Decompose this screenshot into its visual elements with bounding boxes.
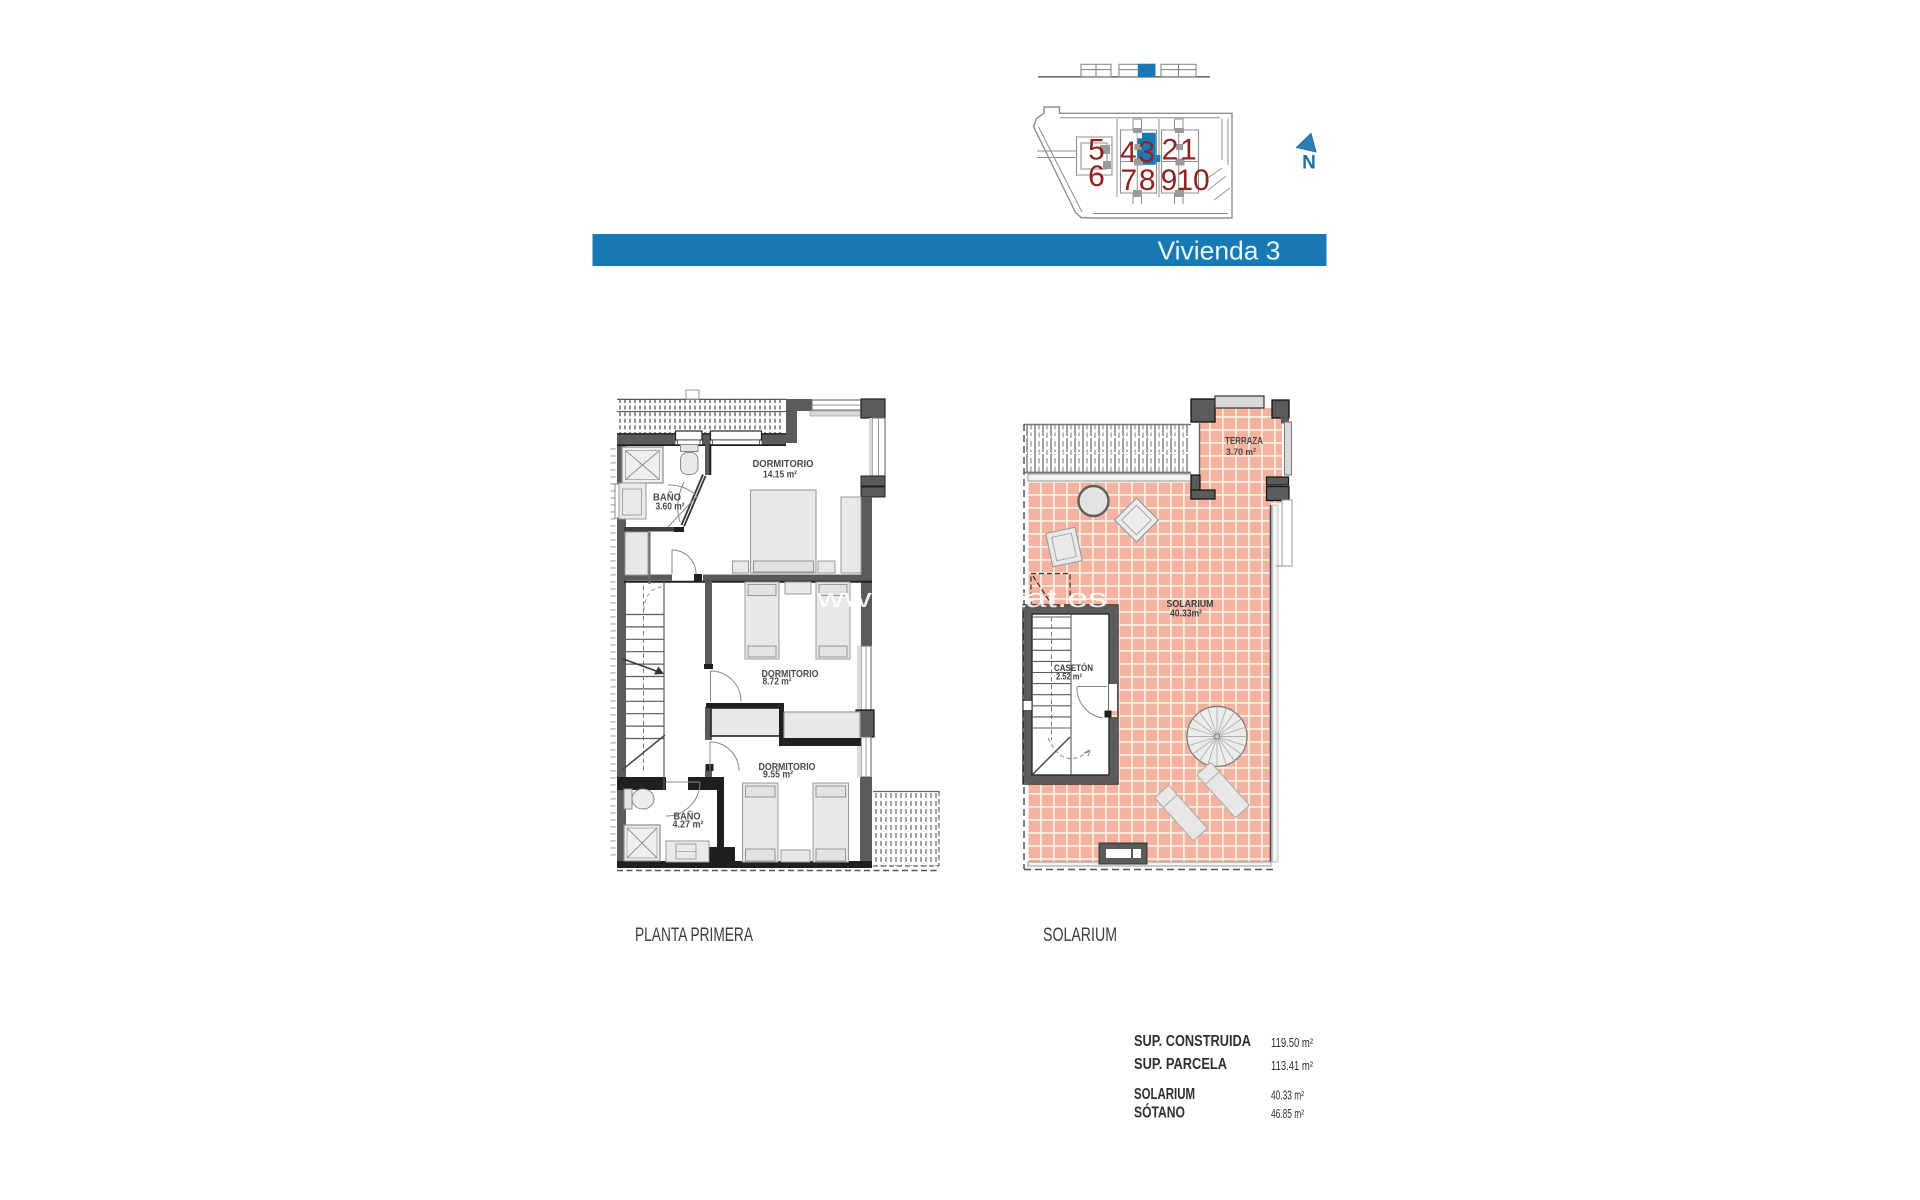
svg-text:113.41 m²: 113.41 m² [1271, 1059, 1313, 1073]
svg-text:7: 7 [1121, 164, 1138, 197]
svg-text:Vivienda 3: Vivienda 3 [1158, 236, 1281, 266]
svg-text:3.60 m²: 3.60 m² [656, 502, 686, 513]
svg-text:4.27 m²: 4.27 m² [673, 820, 705, 831]
svg-text:10: 10 [1176, 164, 1209, 197]
svg-text:3.70 m²: 3.70 m² [1226, 447, 1256, 458]
svg-text:2.52 m²: 2.52 m² [1056, 672, 1082, 682]
svg-text:9: 9 [1161, 164, 1178, 197]
svg-text:1: 1 [1180, 133, 1197, 166]
svg-text:SOLARIUM: SOLARIUM [1134, 1086, 1195, 1103]
svg-text:8: 8 [1139, 164, 1156, 197]
svg-text:TERRAZA: TERRAZA [1225, 436, 1263, 447]
svg-text:N: N [1302, 153, 1316, 174]
svg-text:8.72 m²: 8.72 m² [763, 677, 793, 688]
svg-text:40.33m²: 40.33m² [1170, 609, 1203, 620]
svg-text:SUP. CONSTRUIDA: SUP. CONSTRUIDA [1134, 1033, 1251, 1050]
svg-text:119.50 m²: 119.50 m² [1271, 1036, 1313, 1050]
svg-text:www.virtualitat.es: www.virtualitat.es [816, 583, 1107, 613]
svg-text:2: 2 [1162, 133, 1179, 166]
svg-text:46.85 m²: 46.85 m² [1271, 1107, 1304, 1121]
svg-text:40.33 m²: 40.33 m² [1271, 1089, 1304, 1103]
svg-text:PLANTA PRIMERA: PLANTA PRIMERA [635, 925, 753, 946]
svg-text:SUP. PARCELA: SUP. PARCELA [1134, 1056, 1227, 1073]
svg-text:SOLARIUM: SOLARIUM [1043, 925, 1117, 946]
svg-text:14.15 m²: 14.15 m² [763, 470, 798, 481]
svg-text:SÓTANO: SÓTANO [1134, 1103, 1185, 1122]
svg-text:9.55 m²: 9.55 m² [763, 770, 794, 781]
svg-text:DORMITORIO: DORMITORIO [753, 458, 814, 470]
svg-text:6: 6 [1088, 160, 1105, 193]
